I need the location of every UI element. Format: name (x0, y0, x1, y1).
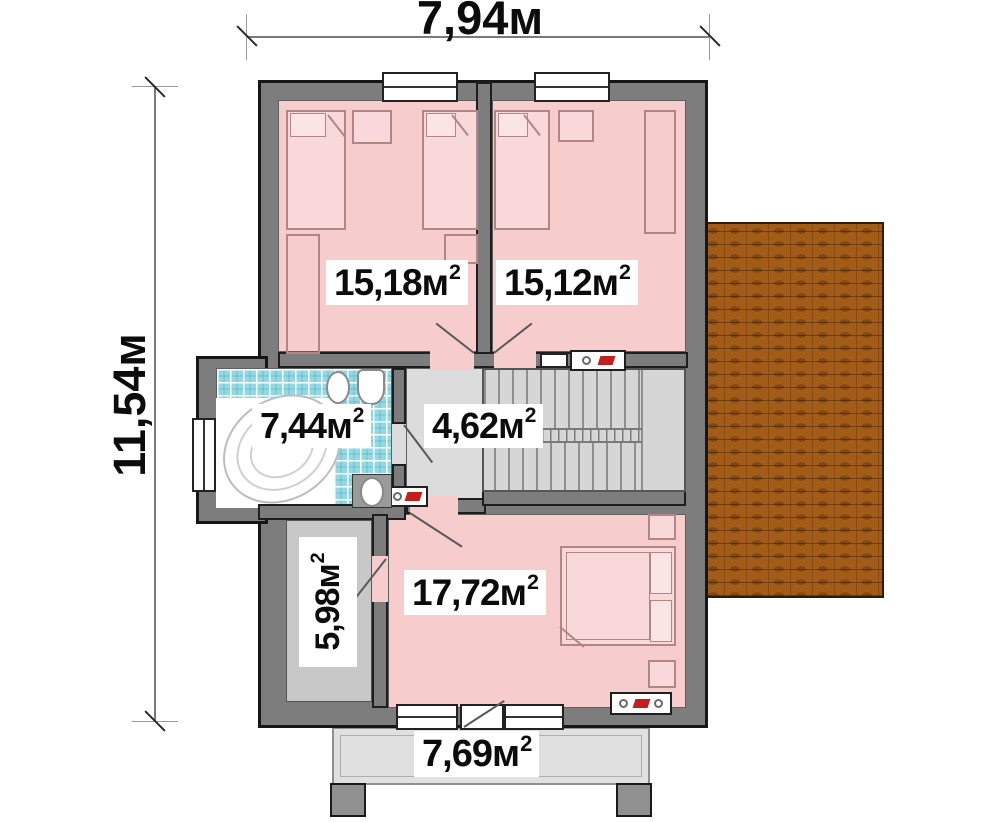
area-value: 15,12 (504, 264, 592, 301)
area-value: 5,98 (311, 588, 345, 650)
radiator-icon (386, 486, 428, 507)
area-exponent: 2 (449, 262, 460, 283)
radiator-icon (610, 692, 672, 715)
terrace-pillar-left (330, 783, 366, 817)
window-top-left (382, 72, 458, 102)
door-opening-bathroom (392, 424, 406, 464)
area-exponent: 2 (527, 572, 538, 593)
room-label-terrace: 7,69м2 (414, 731, 539, 777)
window-frame-line (203, 420, 205, 490)
area-unit: м (592, 264, 618, 301)
radiator-valve-icon (619, 699, 628, 708)
window-frame-line (506, 716, 562, 718)
area-unit: м (422, 264, 448, 301)
stairs-bottom-wall (482, 490, 686, 506)
dimension-width-label: 7,94м (350, 0, 610, 42)
area-value: 7,69 (422, 735, 492, 773)
window-frame-line (536, 86, 608, 88)
window-frame-line (384, 86, 456, 88)
room-label-bedroom-top-right: 15,12м2 (496, 260, 638, 305)
area-unit: м (311, 564, 345, 588)
radiator-flag-icon (404, 492, 422, 501)
stair-flight-lower (494, 443, 642, 490)
area-exponent: 2 (520, 733, 531, 755)
area-value: 7,44 (260, 408, 326, 444)
area-value: 17,72 (412, 574, 500, 611)
nightstand (558, 110, 594, 142)
room-label-hall: 4,62м2 (424, 404, 543, 448)
nightstand (648, 660, 676, 688)
wardrobe-cabinet (644, 110, 676, 234)
area-unit: м (492, 735, 519, 773)
radiator-flag-icon (632, 699, 650, 708)
terrace-pillar-right (616, 783, 652, 817)
nightstand (648, 514, 676, 540)
window-top-right (534, 72, 610, 102)
area-unit: м (326, 408, 352, 444)
area-value: 15,18 (334, 264, 422, 301)
area-unit: м (498, 408, 524, 444)
radiator-flag-icon (598, 356, 616, 365)
nightstand (352, 110, 392, 144)
area-unit: м (500, 574, 526, 611)
area-exponent: 2 (619, 262, 630, 283)
room-label-bathroom: 7,44м2 (252, 404, 371, 448)
wall-below-top-bedrooms (278, 352, 688, 368)
mattress-outline (566, 552, 650, 640)
area-exponent: 2 (353, 406, 364, 427)
window-bottom-right (504, 704, 564, 730)
room-label-bedroom-master: 17,72м2 (404, 570, 546, 615)
pillow (290, 113, 326, 137)
area-exponent: 2 (309, 553, 329, 563)
window-frame-line (398, 716, 456, 718)
toilet-icon (357, 369, 385, 405)
area-value: 4,62 (432, 408, 498, 444)
wardrobe-right-wall (372, 514, 388, 708)
area-exponent: 2 (525, 406, 536, 427)
floor-plan: 7,94м 11,54м (0, 0, 1000, 822)
bathroom-right-wall-upper (392, 368, 406, 424)
wardrobe-cabinet (286, 234, 320, 354)
roof-tiles (700, 222, 884, 598)
window-bottom-left (396, 704, 458, 730)
sink-icon (326, 371, 350, 404)
door-opening-bedroom-top-right (494, 350, 536, 370)
pillow (650, 600, 672, 642)
radiator-icon (570, 350, 626, 371)
bidet-icon (360, 477, 384, 507)
dimension-height-label: 11,54м (45, 320, 215, 490)
wall-vent-panel (540, 353, 568, 368)
window-left-bathroom (192, 418, 216, 492)
door-opening-bedroom-top-left (430, 350, 474, 370)
partition-bedrooms-wall (476, 82, 492, 368)
pillow (650, 552, 672, 594)
radiator-valve-icon (582, 356, 591, 365)
room-label-wardrobe: 5,98м2 (299, 537, 357, 667)
radiator-valve-icon (393, 492, 402, 501)
radiator-valve-icon (654, 699, 663, 708)
room-label-bedroom-top-left: 15,18м2 (326, 260, 468, 305)
